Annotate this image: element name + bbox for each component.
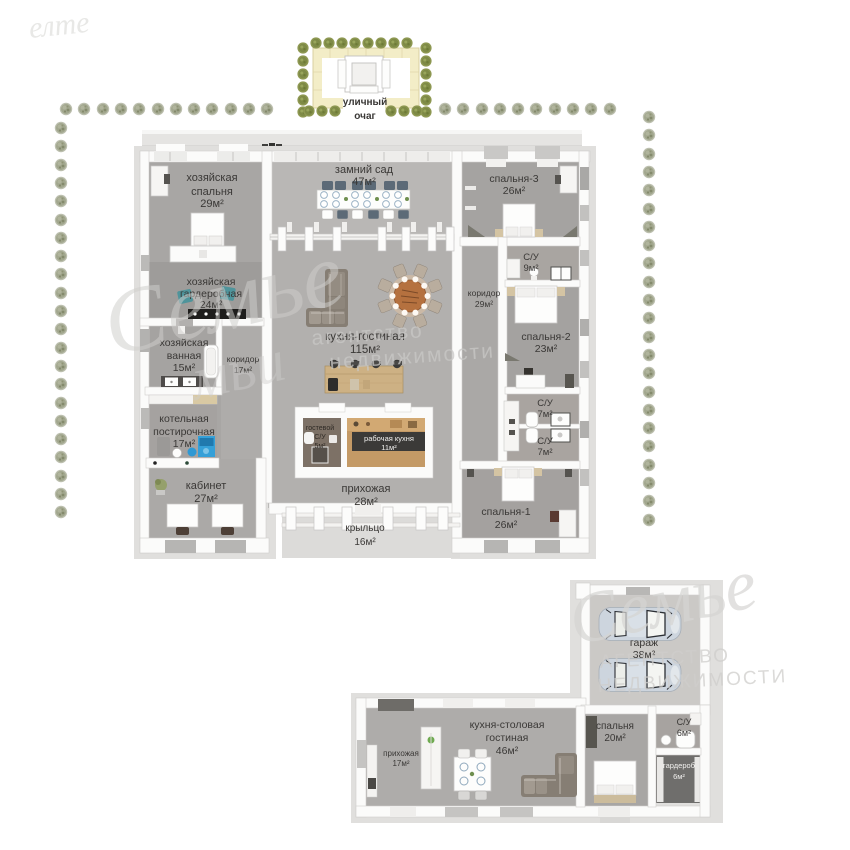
svg-text:26м²: 26м² xyxy=(495,519,518,531)
svg-text:29м²: 29м² xyxy=(475,299,493,309)
svg-text:хозяйская: хозяйская xyxy=(186,172,237,184)
svg-text:46м²: 46м² xyxy=(496,745,519,757)
svg-text:27м²: 27м² xyxy=(194,493,218,505)
svg-text:очаг: очаг xyxy=(354,111,375,122)
svg-text:7м²: 7м² xyxy=(538,409,553,420)
svg-text:20м²: 20м² xyxy=(604,733,626,744)
svg-text:котельная: котельная xyxy=(159,413,208,425)
svg-text:спальня-2: спальня-2 xyxy=(521,331,570,343)
svg-text:7м²: 7м² xyxy=(538,447,553,458)
svg-text:6м²: 6м² xyxy=(677,728,691,738)
svg-text:23м²: 23м² xyxy=(535,343,558,355)
svg-text:С/У: С/У xyxy=(537,436,554,447)
svg-text:17м²: 17м² xyxy=(392,759,409,768)
svg-text:крыльцо: крыльцо xyxy=(345,523,385,534)
svg-text:16м²: 16м² xyxy=(354,537,376,548)
svg-text:5м²: 5м² xyxy=(314,443,326,450)
svg-text:29м²: 29м² xyxy=(200,198,224,210)
svg-text:замний сад: замний сад xyxy=(335,164,394,176)
svg-text:спальня: спальня xyxy=(191,186,233,198)
svg-text:26м²: 26м² xyxy=(503,185,526,197)
svg-text:С/У: С/У xyxy=(537,398,554,409)
svg-text:47м²: 47м² xyxy=(352,176,376,188)
svg-text:гостиная: гостиная xyxy=(486,732,529,744)
svg-text:елте: елте xyxy=(27,6,91,45)
svg-text:уличный: уличный xyxy=(343,97,387,108)
svg-text:17м²: 17м² xyxy=(173,438,196,450)
svg-text:28м²: 28м² xyxy=(354,496,378,508)
svg-text:6м²: 6м² xyxy=(673,772,685,781)
svg-text:9м²: 9м² xyxy=(524,263,539,274)
svg-text:рабочая кухня: рабочая кухня xyxy=(364,434,414,443)
svg-text:гардероб: гардероб xyxy=(663,761,695,770)
svg-text:С/У: С/У xyxy=(314,434,326,441)
svg-text:прихожая: прихожая xyxy=(341,483,390,495)
svg-text:С/У: С/У xyxy=(523,252,540,263)
svg-text:11м²: 11м² xyxy=(381,443,397,452)
svg-text:коридор: коридор xyxy=(468,288,501,298)
svg-text:кабинет: кабинет xyxy=(186,480,226,492)
svg-text:спальня-1: спальня-1 xyxy=(481,506,530,518)
svg-text:постирочная: постирочная xyxy=(153,426,215,438)
svg-text:кухня-столовая: кухня-столовая xyxy=(470,719,545,731)
svg-text:С/У: С/У xyxy=(677,717,692,727)
svg-text:гостевой: гостевой xyxy=(306,424,334,432)
svg-text:прихожая: прихожая xyxy=(383,749,419,758)
svg-text:спальня-3: спальня-3 xyxy=(489,173,538,185)
svg-text:спальня: спальня xyxy=(596,721,634,732)
